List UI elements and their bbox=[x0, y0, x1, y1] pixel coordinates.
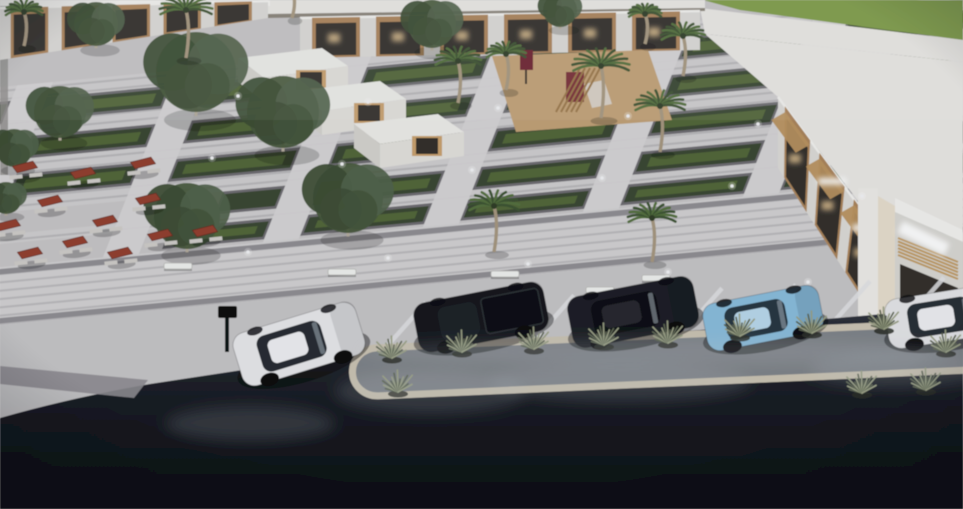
scene-root bbox=[0, 0, 963, 509]
architectural-render-image bbox=[0, 0, 963, 509]
render-canvas bbox=[0, 0, 963, 509]
vignette bbox=[0, 0, 963, 509]
